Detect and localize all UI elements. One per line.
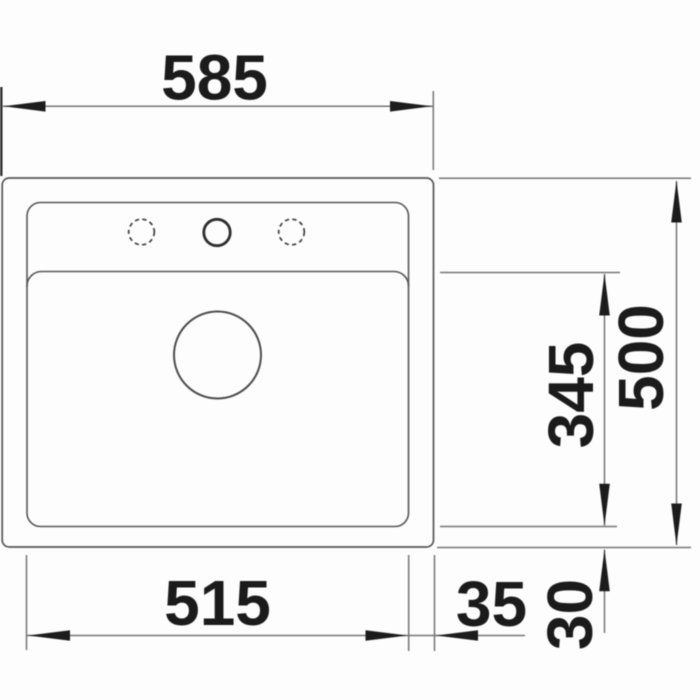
svg-text:35: 35	[456, 568, 527, 640]
svg-text:515: 515	[164, 567, 271, 639]
svg-text:585: 585	[161, 42, 268, 114]
svg-text:30: 30	[534, 579, 606, 650]
svg-text:345: 345	[535, 342, 607, 449]
svg-text:500: 500	[605, 304, 677, 411]
